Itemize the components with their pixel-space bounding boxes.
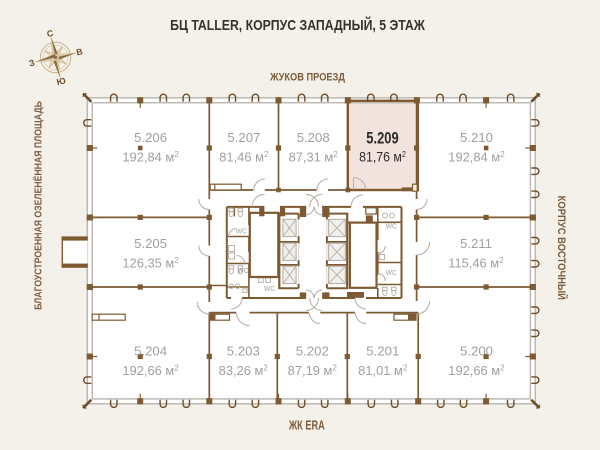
svg-text:126,35 м2: 126,35 м2 — [122, 255, 179, 270]
svg-text:WC: WC — [386, 223, 397, 230]
svg-text:5.210: 5.210 — [460, 130, 493, 145]
svg-text:ЖУКОВ ПРОЕЗД: ЖУКОВ ПРОЕЗД — [269, 72, 345, 84]
svg-text:115,46 м2: 115,46 м2 — [448, 255, 504, 270]
svg-text:5.202: 5.202 — [296, 343, 329, 358]
svg-text:5.204: 5.204 — [134, 343, 167, 358]
svg-text:192,84 м2: 192,84 м2 — [448, 149, 505, 164]
svg-text:87,19 м2: 87,19 м2 — [288, 363, 338, 378]
svg-text:5.205: 5.205 — [134, 236, 167, 251]
svg-text:83,26 м2: 83,26 м2 — [219, 363, 269, 378]
svg-text:81,76 м2: 81,76 м2 — [359, 149, 406, 165]
svg-text:ЖК ERA: ЖК ERA — [288, 419, 325, 433]
svg-text:192,66 м2: 192,66 м2 — [448, 363, 505, 378]
svg-text:WC: WC — [236, 228, 247, 235]
svg-text:81,01 м2: 81,01 м2 — [358, 363, 408, 378]
svg-text:5.209: 5.209 — [366, 130, 398, 148]
svg-text:192,84 м2: 192,84 м2 — [122, 149, 179, 164]
svg-text:БЦ TALLER, КОРПУС ЗАПАДНЫЙ, 5: БЦ TALLER, КОРПУС ЗАПАДНЫЙ, 5 ЭТАЖ — [170, 15, 425, 34]
svg-text:87,31 м2: 87,31 м2 — [289, 149, 339, 164]
svg-text:5.203: 5.203 — [227, 343, 260, 358]
svg-text:WC: WC — [386, 270, 397, 277]
svg-text:5.201: 5.201 — [366, 343, 399, 358]
svg-text:5.206: 5.206 — [134, 130, 167, 145]
svg-text:5.207: 5.207 — [227, 130, 260, 145]
svg-text:БЛАГОУСТРОЕННАЯ ОЗЕЛЕНЁННАЯ ПЛ: БЛАГОУСТРОЕННАЯ ОЗЕЛЕНЁННАЯ ПЛОЩАДЬ — [33, 101, 45, 310]
svg-text:5.208: 5.208 — [297, 130, 330, 145]
svg-text:КОРПУС ВОСТОЧНЫЙ: КОРПУС ВОСТОЧНЫЙ — [555, 196, 569, 300]
svg-text:5.200: 5.200 — [460, 343, 493, 358]
svg-text:192,66 м2: 192,66 м2 — [122, 363, 179, 378]
svg-text:WC: WC — [264, 286, 275, 293]
svg-text:81,46 м2: 81,46 м2 — [219, 149, 269, 164]
svg-text:5.211: 5.211 — [460, 236, 492, 251]
svg-text:WC: WC — [237, 268, 248, 275]
